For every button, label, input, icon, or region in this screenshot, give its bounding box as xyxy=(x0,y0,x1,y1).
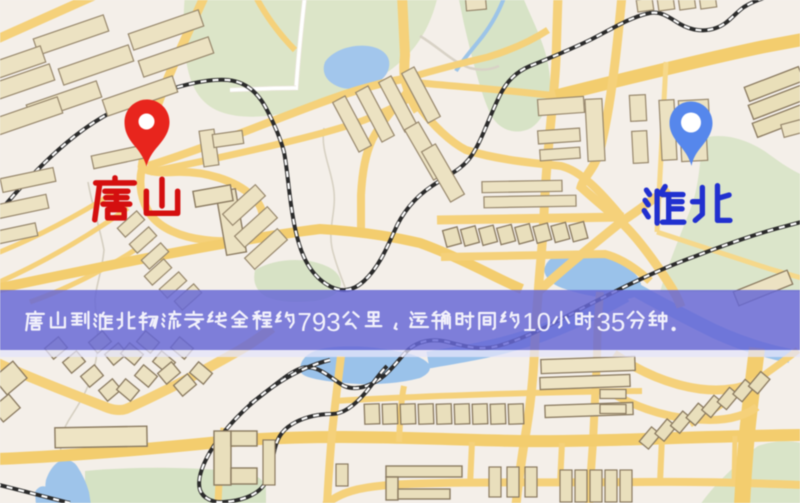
svg-text:35: 35 xyxy=(596,307,625,337)
svg-text:793: 793 xyxy=(297,307,340,337)
svg-text:10: 10 xyxy=(522,307,551,337)
